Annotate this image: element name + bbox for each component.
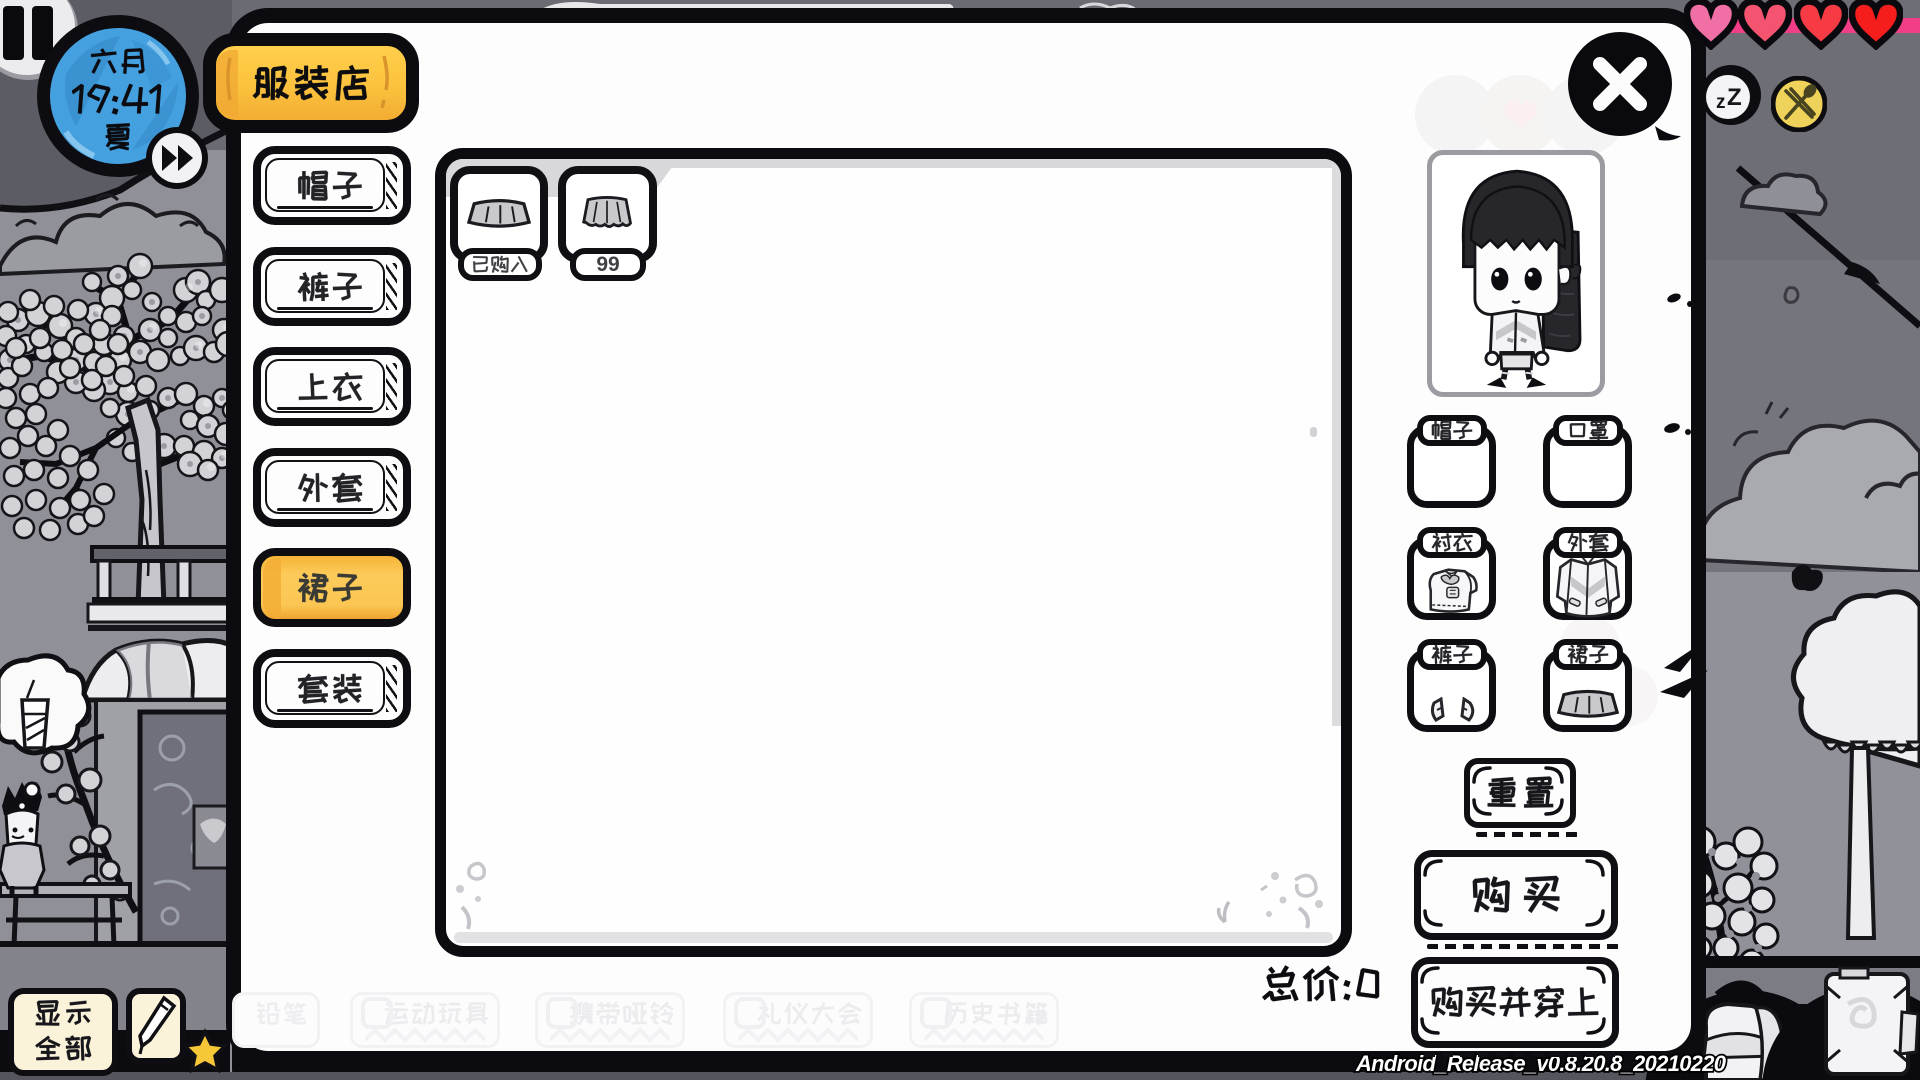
svg-text:z: z <box>1716 92 1726 113</box>
svg-text:99: 99 <box>596 253 619 276</box>
svg-text:Z: Z <box>1727 84 1742 111</box>
